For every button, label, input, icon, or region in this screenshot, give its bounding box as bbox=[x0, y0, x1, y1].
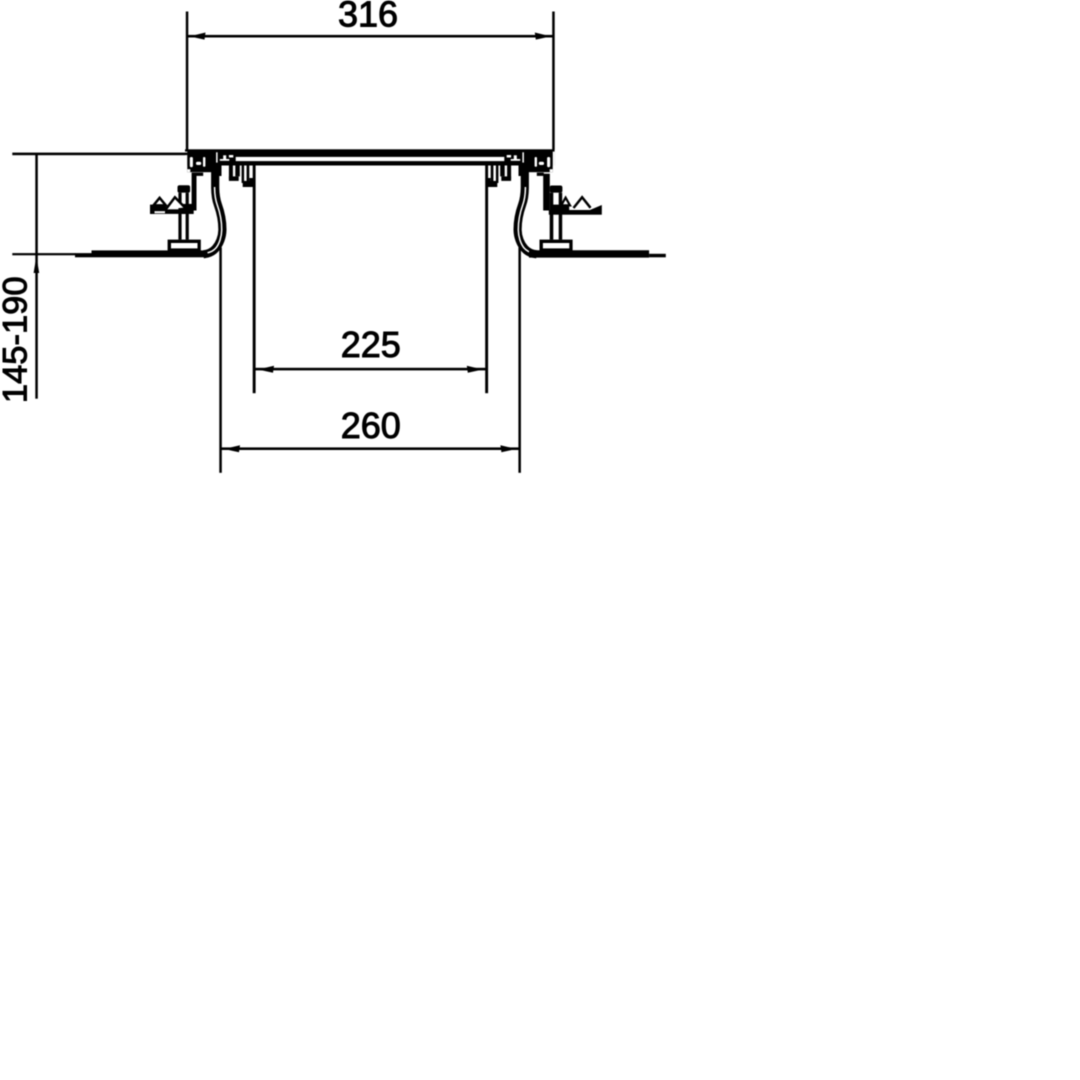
svg-text:260: 260 bbox=[341, 405, 401, 446]
svg-text:316: 316 bbox=[338, 0, 398, 35]
svg-text:225: 225 bbox=[341, 324, 401, 365]
svg-text:145-190: 145-190 bbox=[0, 276, 35, 403]
